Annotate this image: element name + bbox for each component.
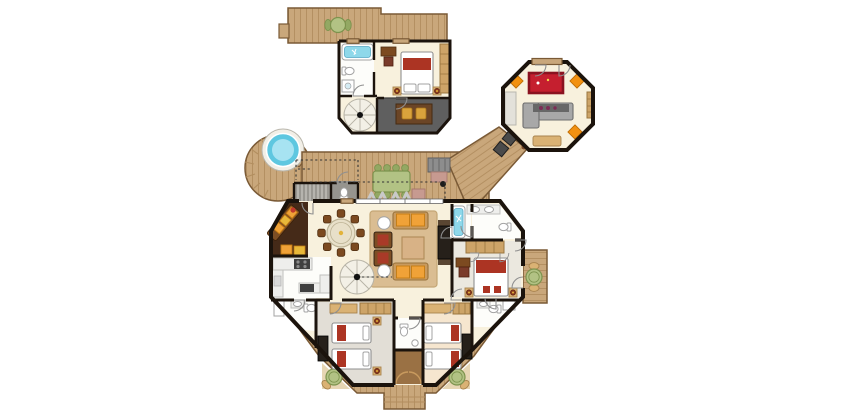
central-wc: [395, 318, 422, 350]
master-chair: [459, 267, 469, 277]
kitchen: [271, 257, 331, 298]
master-wardrobe: [466, 241, 504, 253]
roof-deck-table: [325, 18, 351, 33]
pavilion-door: [532, 59, 562, 65]
glass-sliding-wall: [356, 199, 443, 204]
upper-desk: [381, 47, 396, 56]
roof-deck: [279, 8, 447, 43]
side-table-round: [378, 217, 391, 230]
upper-toilet-icon: [342, 67, 354, 75]
master-desk: [456, 258, 470, 267]
upper-terrace: [377, 98, 450, 133]
sofa-bottom: [393, 263, 428, 280]
games-pavilion: [493, 59, 593, 157]
master-bathroom: [450, 204, 520, 239]
master-bedroom: [452, 241, 521, 297]
upper-desk-chair: [384, 57, 393, 66]
main-villa: [267, 199, 526, 385]
deck-pouf: [412, 189, 425, 200]
bench: [424, 304, 451, 313]
villa-floor-plan: [0, 0, 841, 415]
jacuzzi-icon: [262, 129, 304, 171]
dock-stub: [279, 24, 289, 38]
deck-door: [341, 199, 353, 204]
sofa-top: [393, 212, 428, 229]
floor-plan-canvas: [0, 0, 841, 415]
coffee-table: [402, 237, 424, 259]
side-table-round: [378, 265, 391, 278]
wardrobe: [453, 303, 470, 314]
upper-bathtub-icon: [342, 44, 373, 60]
bench: [330, 304, 357, 313]
daybed-icon: [428, 158, 450, 182]
upper-floor-unit: [339, 39, 450, 133]
pavilion-cabinet: [505, 92, 516, 125]
pavilion-bench: [533, 136, 561, 146]
decor-vase: [290, 207, 295, 212]
upper-wardrobe: [440, 44, 449, 93]
sink-icon: [274, 276, 281, 286]
luggage-closet: [395, 351, 422, 384]
dining-set: [318, 210, 365, 257]
billiard-table: [529, 73, 563, 93]
wardrobe: [360, 303, 391, 314]
upper-spiral-staircase: [344, 99, 376, 131]
